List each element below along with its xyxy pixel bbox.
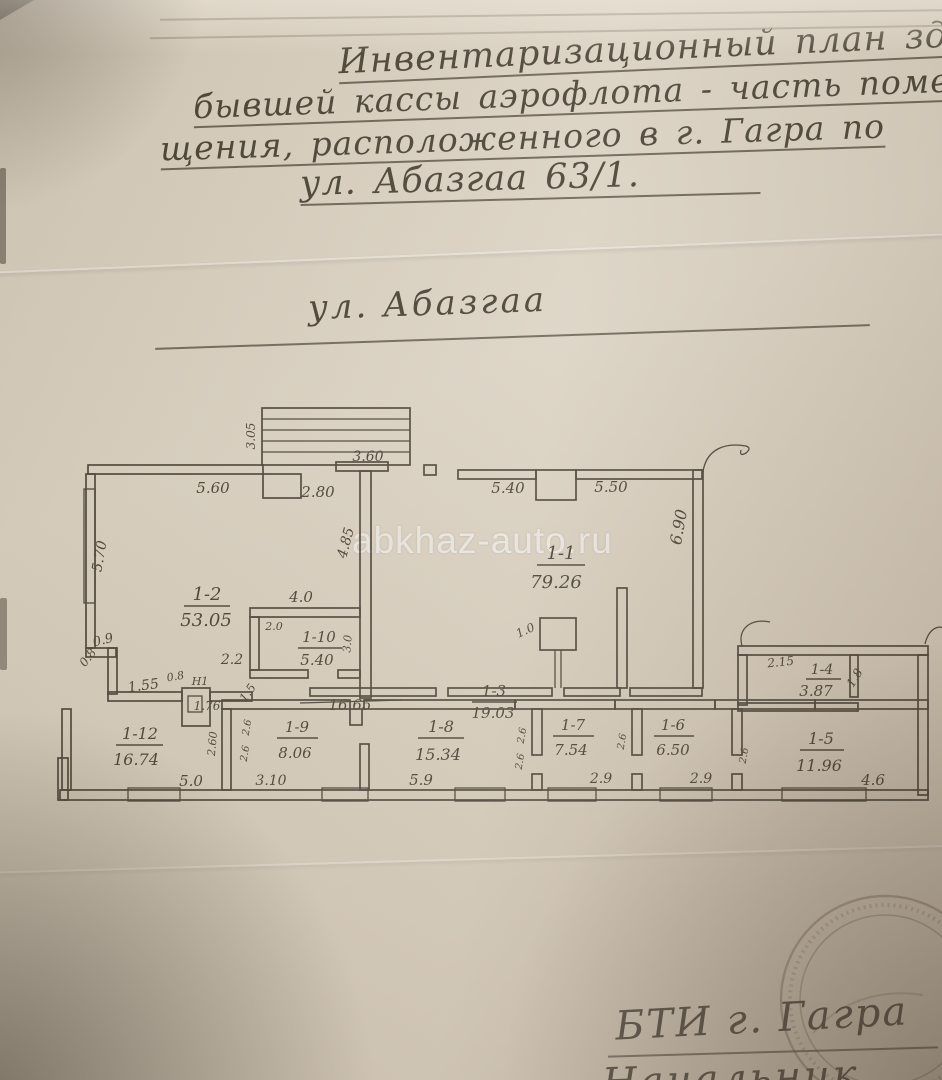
wall bbox=[732, 774, 742, 790]
dim-2-15: 2.15 bbox=[766, 654, 795, 671]
room-1-8: 1-8 15.34 5.9 bbox=[409, 717, 464, 789]
room-1-1: 5.40 5.50 6.90 1-1 79.26 1.0 bbox=[424, 445, 749, 688]
room-id-1-12: 1-12 bbox=[122, 724, 158, 743]
dim-5-60: 5.60 bbox=[196, 479, 230, 497]
dim-5-9: 5.9 bbox=[409, 771, 433, 789]
dim-2-60: 2.60 bbox=[205, 731, 220, 758]
scanned-document-page: Инвентаризационный план здан бывшей касс… bbox=[0, 0, 942, 1080]
page-edge-shadow bbox=[0, 168, 6, 264]
dim-2-0: 2.0 bbox=[264, 620, 283, 633]
floor-plan: 3.05 3.60 5.60 2.80 5.70 4.85 1-2 53.05 … bbox=[0, 392, 942, 844]
wall bbox=[693, 470, 703, 688]
street-underline bbox=[155, 324, 870, 350]
door-swing-arc bbox=[703, 445, 749, 472]
room-1-5: 2.6 1-5 11.96 4.6 bbox=[738, 729, 886, 789]
room-id-1-4: 1-4 bbox=[811, 662, 834, 678]
room-area-1-4: 3.87 bbox=[799, 682, 833, 700]
dim-2-2: 2.2 bbox=[220, 652, 243, 668]
wall bbox=[615, 700, 715, 709]
wall bbox=[250, 608, 360, 617]
dim-2-6: 2.6 bbox=[516, 726, 530, 745]
room-area-1-1: 79.26 bbox=[530, 572, 582, 593]
wall bbox=[62, 709, 71, 790]
wall bbox=[250, 670, 308, 678]
dim-5-40: 5.40 bbox=[491, 479, 525, 497]
room-id-1-9: 1-9 bbox=[285, 718, 310, 736]
dim-4-6: 4.6 bbox=[860, 771, 885, 789]
corner-shadow bbox=[0, 0, 34, 20]
wall bbox=[815, 700, 928, 709]
dim-3-10: 3.10 bbox=[255, 773, 286, 789]
dim-2-6: 2.6 bbox=[738, 746, 752, 765]
wall bbox=[360, 471, 371, 698]
wall-stub bbox=[424, 465, 436, 475]
stairs: 3.05 3.60 bbox=[244, 408, 410, 465]
round-stamp bbox=[718, 883, 942, 1080]
wall bbox=[564, 688, 620, 696]
room-1-12: 1-12 16.74 2.60 5.0 bbox=[113, 724, 220, 790]
dim-2-9: 2.9 bbox=[689, 771, 712, 787]
dim-stairs-depth: 3.05 bbox=[244, 423, 258, 450]
footer-partial-line: Начальник bbox=[601, 1052, 860, 1080]
dim-4-85: 4.85 bbox=[334, 526, 358, 561]
wall bbox=[88, 465, 263, 474]
dim-5-0: 5.0 bbox=[179, 772, 203, 790]
wall bbox=[632, 774, 642, 790]
room-area-1-6: 6.50 bbox=[656, 741, 690, 759]
column bbox=[540, 618, 576, 650]
wall bbox=[738, 646, 928, 655]
room-1-7: 2.6 2.6 1-7 7.54 2.9 bbox=[514, 716, 613, 787]
stairs-outline bbox=[262, 408, 410, 465]
door-niche bbox=[263, 474, 301, 498]
room-id-1-6: 1-6 bbox=[661, 716, 686, 734]
room-id-1-5: 1-5 bbox=[808, 729, 834, 748]
wall bbox=[532, 709, 542, 755]
room-area-1-9: 8.06 bbox=[278, 744, 312, 762]
wall bbox=[515, 700, 615, 709]
top-edge-line bbox=[160, 9, 942, 21]
room-id-1-1: 1-1 bbox=[547, 543, 576, 564]
street-label: ул. Абазгаа bbox=[307, 280, 547, 328]
paper-crease bbox=[0, 232, 942, 274]
dim-2-6: 2.6 bbox=[514, 752, 528, 771]
wall bbox=[715, 700, 815, 709]
room-area-1-7: 7.54 bbox=[554, 741, 587, 759]
dim-0-8b: 0.8 bbox=[166, 669, 185, 685]
room-1-9: 2.6 2.6 1-9 8.06 3.10 bbox=[239, 718, 318, 789]
dim-5-70: 5.70 bbox=[89, 539, 110, 573]
room-area-1-3: 19.03 bbox=[472, 704, 515, 722]
dim-2-6: 2.6 bbox=[241, 718, 255, 737]
door-swing-arc bbox=[925, 627, 942, 644]
wall bbox=[360, 744, 369, 790]
dim-2-6: 2.6 bbox=[239, 744, 253, 763]
room-1-6: 2.6 1-6 6.50 2.9 bbox=[616, 716, 713, 787]
room-area-1-12: 16.74 bbox=[113, 750, 159, 769]
dim-1-76: 1.76 bbox=[194, 699, 221, 713]
wall bbox=[918, 655, 928, 795]
wall bbox=[632, 709, 642, 755]
door-swing-arc bbox=[741, 621, 770, 646]
room-area-1-2: 53.05 bbox=[180, 610, 232, 631]
dim-4-0: 4.0 bbox=[288, 588, 313, 606]
outer-wall bbox=[60, 790, 928, 800]
paper-crease bbox=[0, 844, 942, 874]
dim-1-0: 1.0 bbox=[514, 620, 538, 641]
room-id-1-3: 1-3 bbox=[482, 682, 506, 700]
wall bbox=[250, 617, 259, 670]
dim-6-90: 6.90 bbox=[666, 508, 691, 546]
dim-5-50: 5.50 bbox=[594, 478, 628, 496]
dim-1-8: 1.8 bbox=[844, 666, 866, 690]
room-id-1-10: 1-10 bbox=[302, 628, 336, 646]
wall bbox=[630, 688, 702, 696]
wall bbox=[617, 588, 627, 688]
room-area-1-8: 15.34 bbox=[415, 745, 461, 764]
room-id-1-8: 1-8 bbox=[428, 717, 454, 736]
room-area-1-5: 11.96 bbox=[796, 756, 842, 775]
wall bbox=[338, 670, 360, 678]
label-n1: Н1 bbox=[191, 675, 209, 688]
door-niche bbox=[536, 470, 576, 500]
room-area-1-10: 5.40 bbox=[300, 651, 334, 669]
dim-2-9: 2.9 bbox=[589, 771, 612, 787]
wall bbox=[222, 709, 231, 790]
dim-2-80: 2.80 bbox=[300, 483, 335, 501]
wall bbox=[458, 470, 536, 479]
dim-1-55: 1.55 bbox=[127, 676, 160, 696]
footer-bti-line: БТИ г. Гагра bbox=[614, 988, 909, 1049]
room-id-1-7: 1-7 bbox=[561, 716, 586, 734]
wall bbox=[532, 774, 542, 790]
room-id-1-2: 1-2 bbox=[193, 584, 222, 605]
wall bbox=[738, 655, 747, 705]
room-1-10: 2.0 1-10 5.40 3.0 2.2 bbox=[220, 608, 360, 678]
dim-2-6: 2.6 bbox=[616, 732, 630, 751]
wall bbox=[310, 688, 436, 696]
dim-3-0: 3.0 bbox=[340, 634, 354, 653]
